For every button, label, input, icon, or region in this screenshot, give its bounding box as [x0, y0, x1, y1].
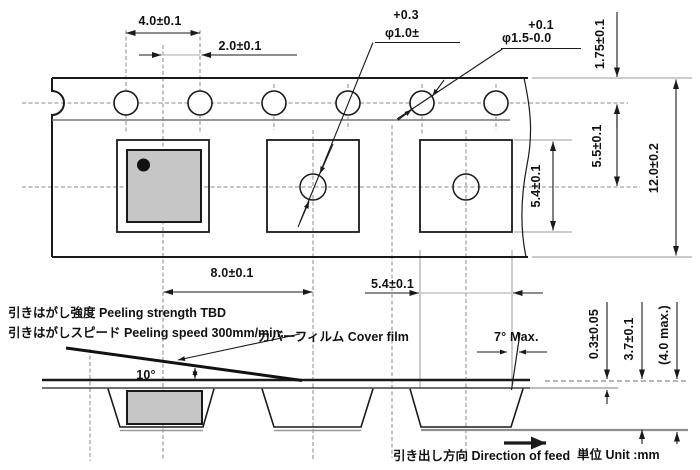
background [0, 0, 700, 470]
technical-drawing: 4.0±0.1 2.0±0.1 +0.3 φ1.0± +0.1 φ1.5-0.0… [0, 0, 700, 470]
dim-depth-max-label: (4.0 max.) [657, 305, 671, 365]
dim-width-label: 12.0±0.2 [647, 143, 661, 193]
dim-pocket-pitch-label: 8.0±0.1 [210, 266, 253, 280]
dim-pocket-length-label: 5.4±0.1 [529, 164, 543, 207]
dim-depth-label: 3.7±0.1 [622, 317, 636, 360]
tolerance-small-hole-label: +0.3 [393, 8, 418, 22]
peel-angle-label: 10° [136, 368, 156, 382]
peeling-strength-note: 引きはがし強度 Peeling strength TBD [8, 305, 226, 320]
sprocket-hole [188, 91, 212, 115]
pin1-dot [137, 159, 150, 172]
peeling-speed-note: 引きはがしスピード Peeling speed 300mm/min. [8, 325, 284, 340]
dim-pocket-width-label: 5.4±0.1 [371, 277, 414, 291]
sprocket-hole [262, 91, 286, 115]
dim-edge-label: 1.75±0.1 [593, 19, 607, 69]
sprocket-hole [484, 91, 508, 115]
dim-center-label: 5.5±0.1 [590, 124, 604, 167]
cover-film-note: カバーフィルム Cover film [258, 330, 409, 344]
unit-note: 単位 Unit :mm [577, 447, 660, 462]
dim-pitch-label: 4.0±0.1 [138, 14, 181, 28]
sprocket-hole [114, 91, 138, 115]
wall-angle-label: 7° Max. [494, 330, 539, 344]
component-chip [127, 150, 201, 222]
feed-direction-note: 引き出し方向 Direction of feed [393, 448, 570, 463]
dim-offset-label: 2.0±0.1 [218, 39, 261, 53]
component-chip-section [127, 391, 202, 424]
dia-sprocket-label: φ1.5-0.0 [502, 31, 551, 45]
tolerance-sprocket-label: +0.1 [528, 18, 553, 32]
dia-small-hole-label: φ1.0± [385, 26, 419, 40]
dim-thickness-label: 0.3±0.05 [587, 309, 601, 359]
